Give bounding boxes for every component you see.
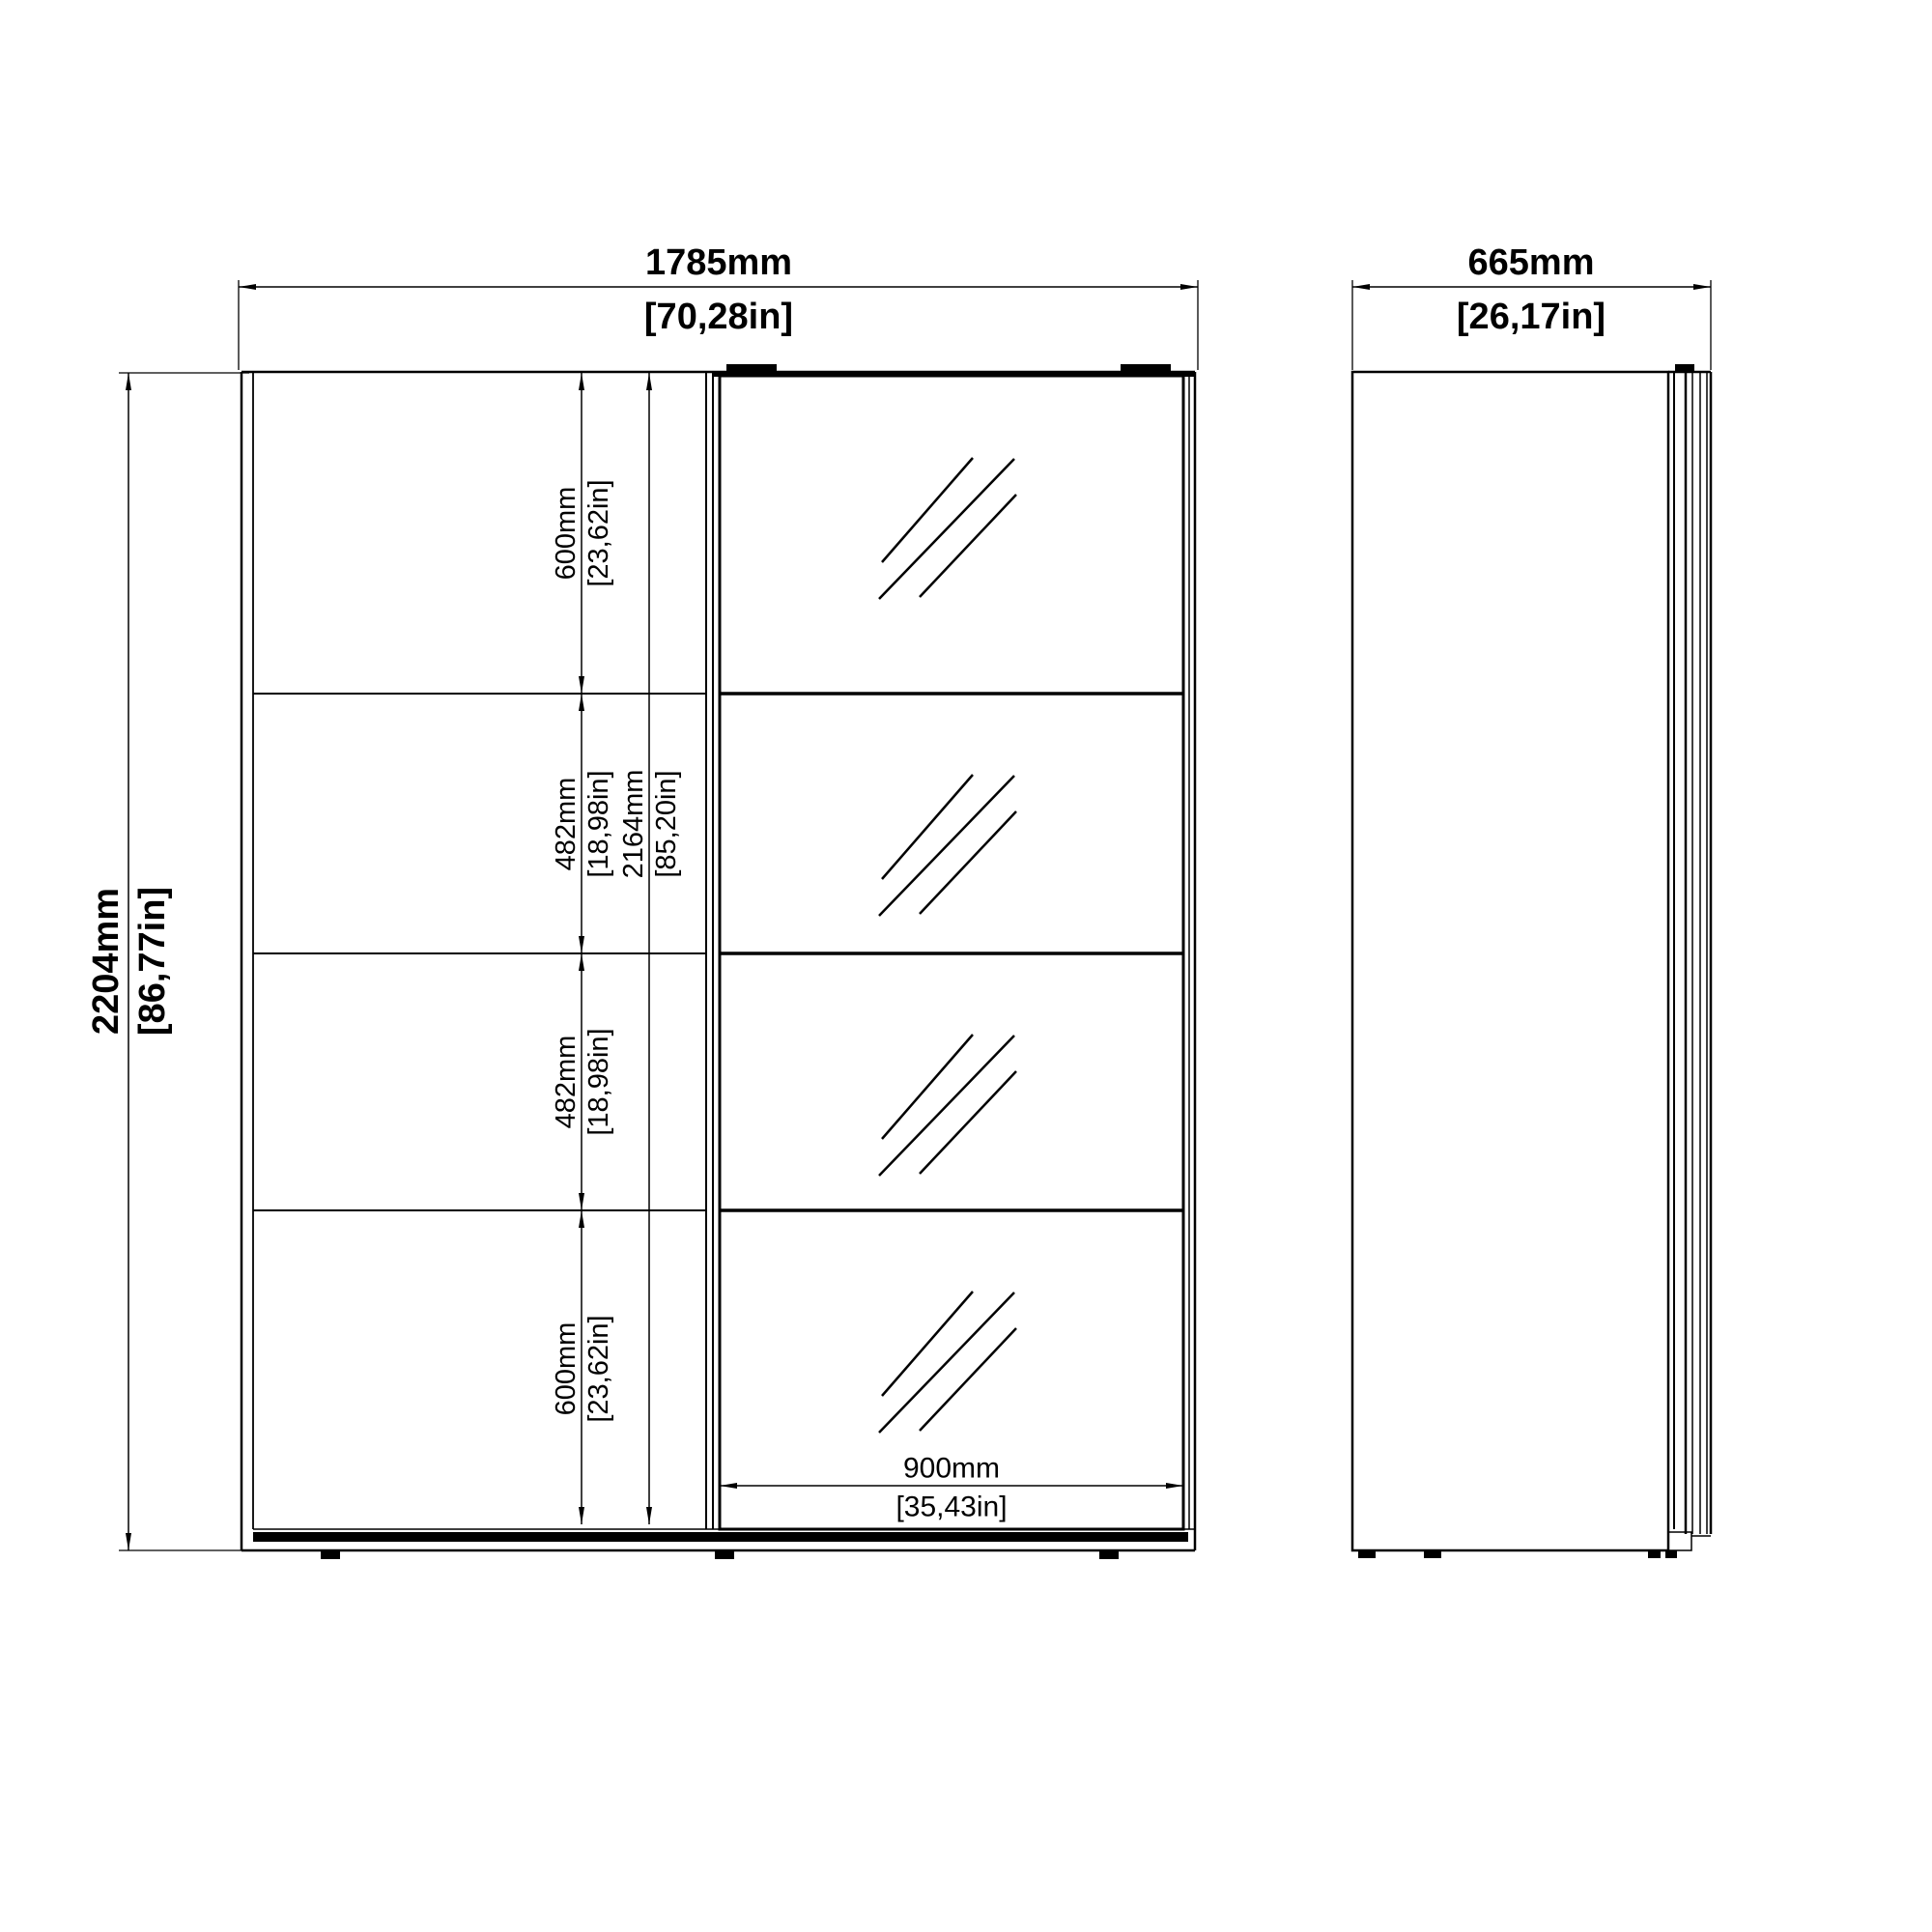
front-width-mm-label: 1785mm [645,242,792,283]
left-door-shelf-lines [253,372,713,1529]
door-width-inch-label: [35,43in] [895,1492,1007,1523]
front-base [253,1529,1195,1559]
dim-front-height: 2204mm [86,77in] [86,373,249,1550]
dim-front-width: 1785mm [70,28in] [239,242,1198,370]
foot [1099,1550,1119,1559]
technical-drawing-page: 1785mm [70,28in] 665mm [26,17in] 2204mm … [0,0,1932,1932]
interior-total-inch-label: [85,20in] [651,770,682,877]
door-width-mm-label: 900mm [903,1453,1000,1485]
side-view [1352,364,1711,1558]
section1-inch-label: [23,62in] [583,479,614,586]
side-depth-mm-label: 665mm [1468,242,1595,283]
front-height-inch-label: [86,77in] [132,887,173,1036]
dim-interior-total: 2164mm [85,20in] [618,373,682,1524]
dim-door-width: 900mm [35,43in] [720,1453,1183,1523]
front-height-mm-label: 2204mm [86,888,127,1035]
section3-inch-label: [18,98in] [583,1028,614,1135]
bottom-track [253,1532,1188,1542]
section2-mm-label: 482mm [551,778,582,871]
top-rail-hardware [726,364,777,373]
front-view [241,364,1195,1559]
top-rail-hardware [1121,364,1171,373]
wardrobe-dimension-drawing: 1785mm [70,28in] 665mm [26,17in] 2204mm … [0,0,1932,1932]
side-carcass [1352,372,1668,1550]
section4-inch-label: [23,62in] [583,1315,614,1422]
section2-inch-label: [18,98in] [583,770,614,877]
bottom-door-guide [1668,1532,1691,1550]
section4-mm-label: 600mm [551,1322,582,1416]
dim-interior-sections: 600mm [23,62in] 482mm [18,98in] 482mm [1… [551,373,614,1524]
mirror-hatch-marks [879,458,1016,1433]
front-width-inch-label: [70,28in] [644,297,793,337]
section1-mm-label: 600mm [551,487,582,581]
side-depth-inch-label: [26,17in] [1457,297,1605,337]
foot [321,1550,340,1559]
section3-mm-label: 482mm [551,1036,582,1129]
dim-side-depth: 665mm [26,17in] [1352,242,1711,370]
interior-total-mm-label: 2164mm [618,770,649,879]
top-rail-hardware [1675,364,1694,372]
foot [715,1550,734,1559]
